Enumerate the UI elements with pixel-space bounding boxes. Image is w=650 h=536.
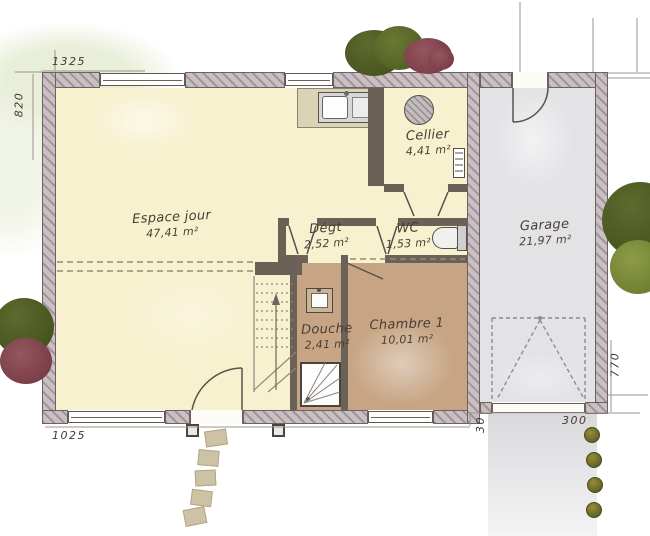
washbasin-bowl	[311, 293, 328, 308]
stepping-stone	[197, 449, 219, 467]
floor-plan: Espace jour 47,41 m² Cellier 4,41 m² Dég…	[0, 0, 650, 536]
wall-hall-south	[385, 255, 467, 263]
room-label-cellier: Cellier 4,41 m²	[392, 126, 463, 158]
water-heater	[404, 95, 434, 125]
garage-wall-bottom	[480, 402, 492, 414]
light-patch	[494, 352, 586, 404]
bush-left-flowering	[0, 338, 52, 384]
wall-cellier-south	[448, 184, 467, 192]
porch-post	[272, 424, 285, 437]
dim-garage-depth: 770	[608, 352, 621, 378]
window-bedroom	[368, 411, 433, 423]
wall-hall-west	[278, 218, 286, 263]
garage-door-panel	[492, 403, 585, 413]
garage-service-door-opening	[512, 72, 548, 88]
exterior-wall-bottom	[165, 410, 190, 424]
entry-door-opening	[190, 410, 243, 424]
shrub-ball	[587, 477, 603, 493]
room-label-chambre: Chambre 1 10,01 m²	[361, 315, 454, 347]
dim-garage-offset: 30	[474, 416, 487, 433]
light-patch	[118, 268, 268, 363]
driveway	[488, 414, 597, 536]
window-kitchen	[285, 73, 333, 86]
porch-post	[186, 424, 199, 437]
light-patch	[494, 90, 574, 190]
exterior-wall-top	[185, 72, 285, 88]
exterior-wall-bottom	[42, 410, 68, 424]
shrub-ball	[586, 452, 602, 468]
window-living-bottom	[68, 411, 165, 423]
dim-garage-door-width: 300	[562, 414, 588, 427]
wall-cellier-south	[384, 184, 404, 192]
garage-wall-top	[480, 72, 512, 88]
stepping-stone	[204, 429, 228, 448]
shower-tray	[300, 362, 341, 407]
dim-bottom-width: 1025	[52, 429, 86, 442]
light-patch	[92, 90, 197, 152]
garage-wall-bottom	[585, 402, 608, 414]
sink-faucet	[344, 91, 349, 96]
exterior-wall-bottom	[243, 410, 368, 424]
exterior-wall-top	[333, 72, 480, 88]
garage-wall-right	[595, 72, 608, 414]
stepping-stone	[183, 506, 208, 527]
shrub-ball	[584, 427, 600, 443]
dim-left-height: 820	[12, 92, 25, 118]
room-label-douche: Douche 2,41 m²	[293, 321, 362, 352]
room-label-garage: Garage 21,97 m²	[504, 216, 585, 249]
washbasin-faucet	[317, 288, 321, 292]
window-living-top	[100, 73, 185, 86]
toilet-bowl	[432, 227, 458, 249]
shrub-ball	[586, 502, 602, 518]
stepping-stone	[190, 489, 213, 507]
dim-top-width: 1325	[52, 55, 86, 68]
room-label-degt: Dégt 2,52 m²	[294, 219, 358, 252]
sink-basin	[322, 96, 348, 119]
wall-kitchen-cellier	[368, 88, 384, 186]
toilet-tank	[457, 225, 467, 251]
room-label-wc: WC 1,53 m²	[382, 220, 433, 251]
flowering-bush-top	[428, 48, 454, 70]
wall-house-garage	[467, 72, 480, 424]
stepping-stone	[195, 469, 217, 486]
